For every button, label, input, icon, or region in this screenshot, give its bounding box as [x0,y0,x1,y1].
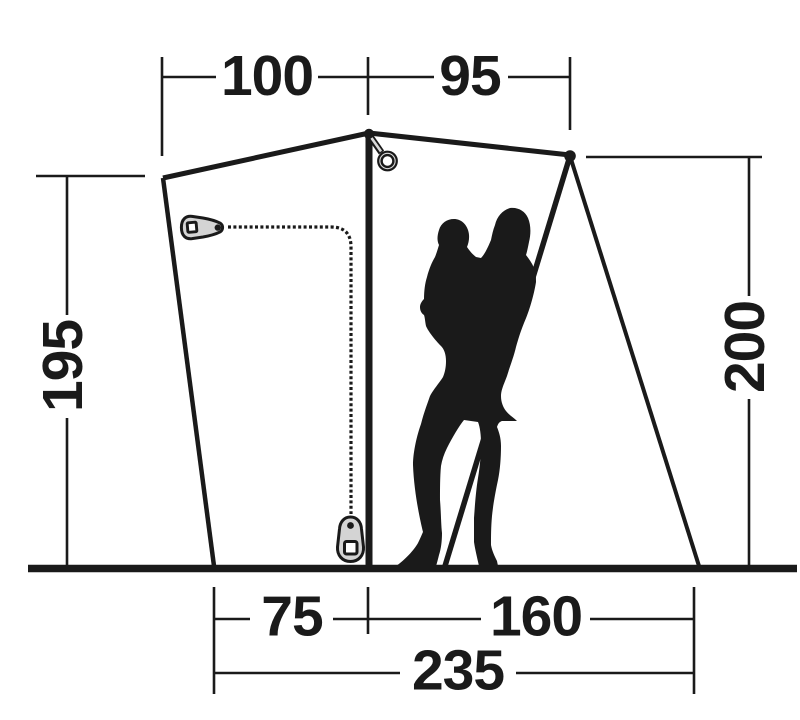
svg-text:195: 195 [31,320,95,412]
svg-text:200: 200 [713,301,777,393]
svg-text:100: 100 [221,44,313,108]
svg-text:95: 95 [439,44,501,108]
svg-text:75: 75 [261,585,323,649]
svg-text:235: 235 [412,639,504,703]
